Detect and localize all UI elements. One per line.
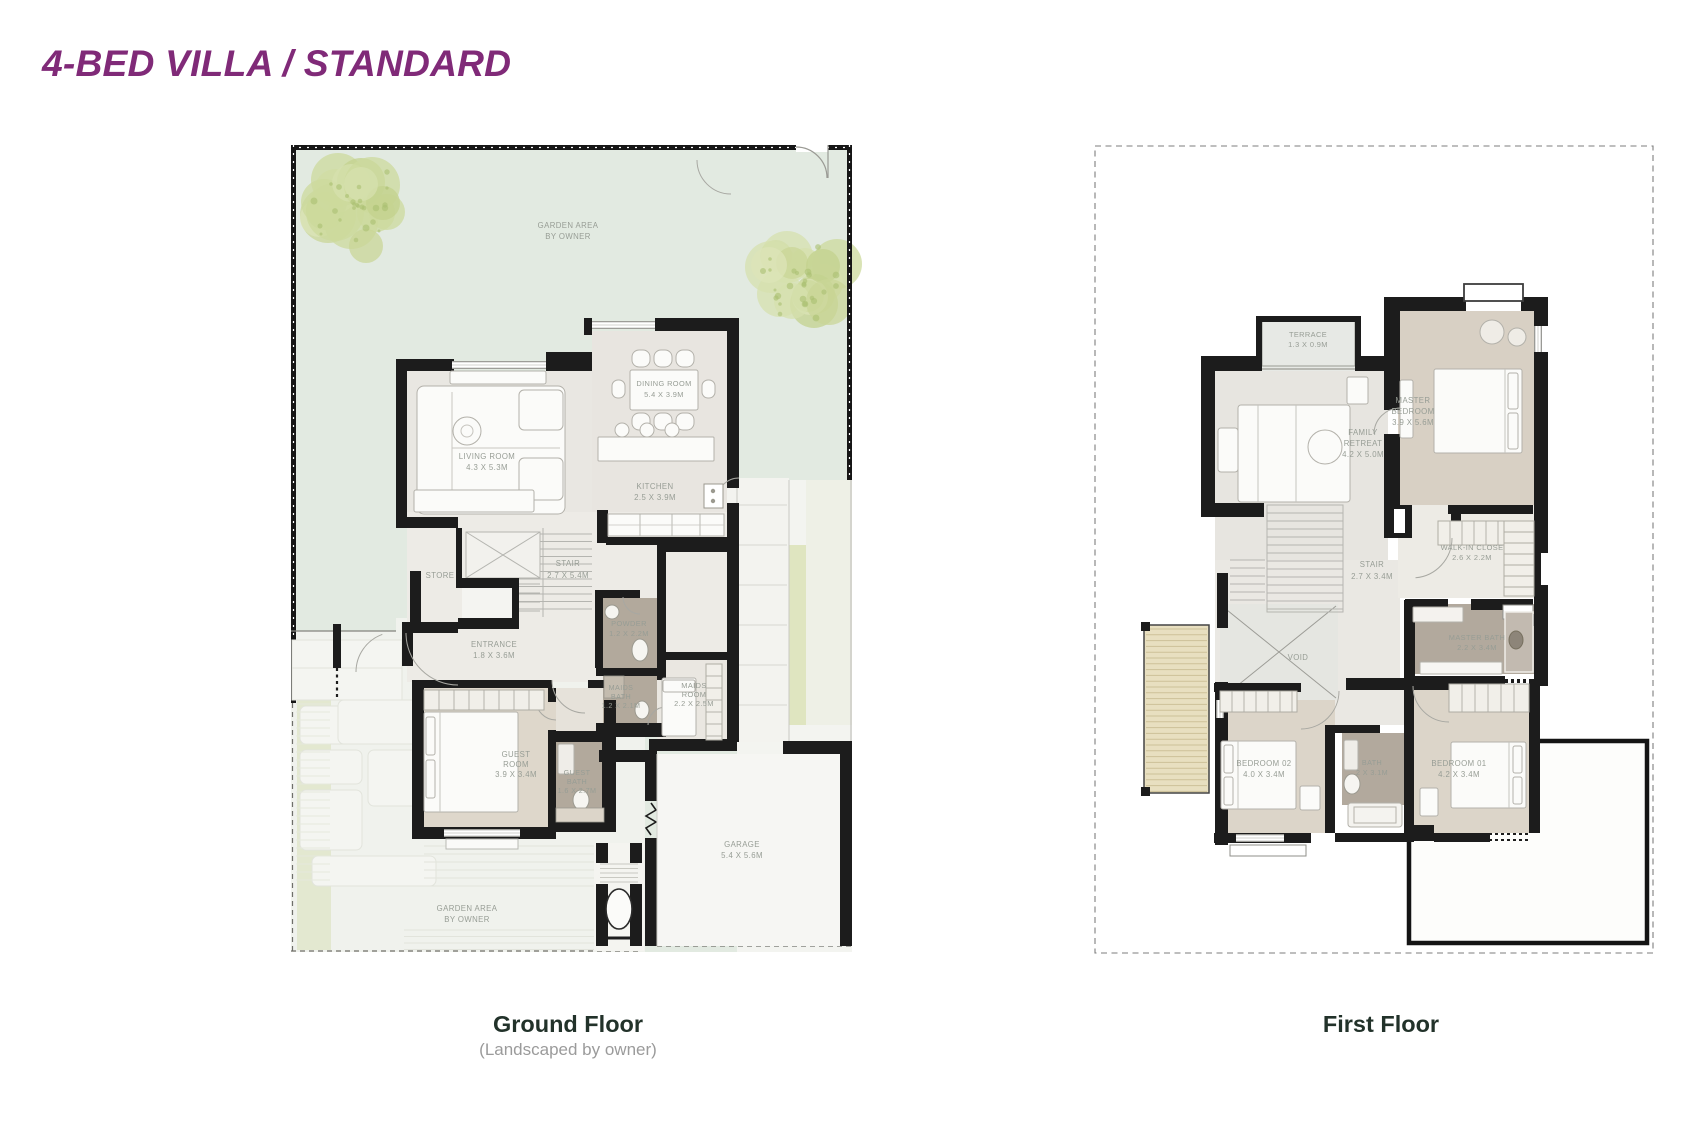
svg-text:1.3 X 0.9M: 1.3 X 0.9M (1288, 340, 1328, 349)
svg-text:3.9 X 5.6M: 3.9 X 5.6M (1392, 418, 1434, 427)
svg-text:BEDROOM 01: BEDROOM 01 (1431, 759, 1486, 768)
svg-text:POWDER: POWDER (611, 619, 647, 628)
svg-text:ENTRANCE: ENTRANCE (471, 640, 517, 649)
svg-text:4.0 X 3.4M: 4.0 X 3.4M (1243, 770, 1285, 779)
svg-text:BATH: BATH (567, 777, 587, 786)
svg-text:4.3 X 5.3M: 4.3 X 5.3M (466, 463, 508, 472)
svg-text:BATH: BATH (611, 692, 631, 701)
svg-text:STORE: STORE (426, 571, 455, 580)
svg-text:LIVING ROOM: LIVING ROOM (459, 452, 515, 461)
svg-text:2 X 3.1M: 2 X 3.1M (1356, 768, 1388, 777)
svg-text:ROOM: ROOM (503, 760, 529, 769)
svg-text:5.4 X 5.6M: 5.4 X 5.6M (721, 851, 763, 860)
svg-text:2.7 X 5.4M: 2.7 X 5.4M (547, 571, 589, 580)
svg-text:GUEST: GUEST (564, 768, 591, 777)
svg-text:KITCHEN: KITCHEN (636, 482, 673, 491)
svg-text:FAMILY: FAMILY (1348, 428, 1378, 437)
svg-text:MASTER BATH: MASTER BATH (1449, 633, 1505, 642)
svg-text:MAIDS: MAIDS (681, 681, 706, 690)
svg-text:GARAGE: GARAGE (724, 840, 760, 849)
svg-text:2.5 X 3.9M: 2.5 X 3.9M (634, 493, 676, 502)
svg-text:STAIR: STAIR (556, 559, 580, 568)
svg-text:MASTER: MASTER (1396, 396, 1431, 405)
svg-text:5.4 X 3.9M: 5.4 X 3.9M (644, 390, 684, 399)
svg-text:TERRACE: TERRACE (1289, 330, 1327, 339)
svg-text:2.2 X 2.5M: 2.2 X 2.5M (674, 699, 714, 708)
svg-text:RETREAT: RETREAT (1344, 439, 1383, 448)
svg-text:BEDROOM: BEDROOM (1391, 407, 1434, 416)
svg-text:1.8 X 3.6M: 1.8 X 3.6M (473, 651, 515, 660)
svg-text:1.2 X 2.2M: 1.2 X 2.2M (609, 629, 649, 638)
svg-text:4.2 X 5.0M: 4.2 X 5.0M (1342, 450, 1384, 459)
svg-text:(Landscaped by owner): (Landscaped by owner) (479, 1040, 657, 1059)
svg-text:GARDEN AREA: GARDEN AREA (437, 904, 498, 913)
svg-text:BATH: BATH (1362, 758, 1382, 767)
svg-text:BEDROOM 02: BEDROOM 02 (1236, 759, 1291, 768)
svg-text:BY OWNER: BY OWNER (545, 232, 591, 241)
svg-text:STAIR: STAIR (1360, 560, 1384, 569)
svg-text:First Floor: First Floor (1323, 1011, 1439, 1037)
svg-text:4-BED VILLA / STANDARD: 4-BED VILLA / STANDARD (41, 42, 511, 84)
svg-text:1.6 X 2.7M: 1.6 X 2.7M (558, 786, 597, 795)
svg-text:DINING ROOM: DINING ROOM (636, 379, 691, 388)
svg-text:ROOM: ROOM (682, 690, 707, 699)
svg-text:4.2 X 3.4M: 4.2 X 3.4M (1438, 770, 1480, 779)
svg-text:GUEST: GUEST (502, 750, 531, 759)
svg-text:WALK-IN CLOSE: WALK-IN CLOSE (1441, 543, 1504, 552)
svg-text:BY OWNER: BY OWNER (444, 915, 490, 924)
svg-text:VOID: VOID (1288, 653, 1309, 662)
svg-text:MAIDS: MAIDS (609, 683, 634, 692)
svg-text:2.7 X 3.4M: 2.7 X 3.4M (1351, 572, 1393, 581)
svg-text:3.9 X 3.4M: 3.9 X 3.4M (495, 770, 537, 779)
svg-text:2.6 X 2.2M: 2.6 X 2.2M (1452, 553, 1492, 562)
svg-text:GARDEN AREA: GARDEN AREA (538, 221, 599, 230)
svg-text:Ground Floor: Ground Floor (493, 1011, 643, 1037)
svg-text:1.2 X 2.1M: 1.2 X 2.1M (602, 701, 641, 710)
svg-text:2.2 X 3.4M: 2.2 X 3.4M (1457, 643, 1497, 652)
